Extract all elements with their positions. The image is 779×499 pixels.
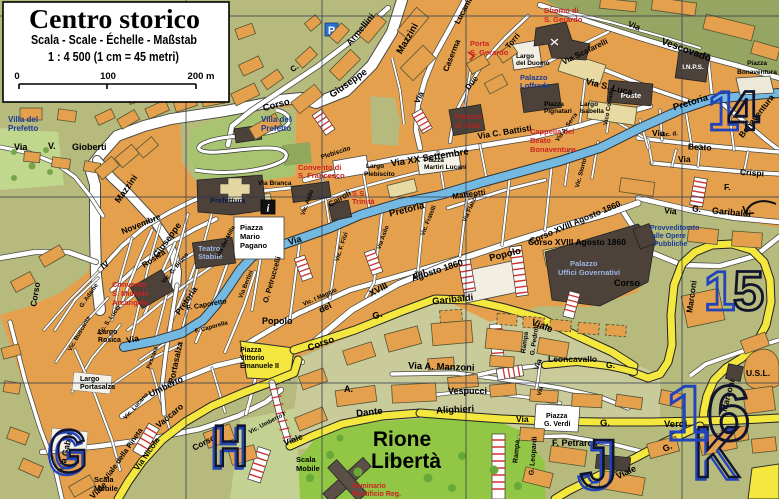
svg-text:V.: V. (48, 141, 56, 151)
svg-text:Piazza: Piazza (424, 157, 444, 164)
svg-text:Libertà: Libertà (371, 450, 441, 473)
svg-text:Leoncavallo: Leoncavallo (548, 354, 597, 364)
svg-text:Piazza: Piazza (747, 60, 767, 67)
svg-text:Popolo: Popolo (262, 316, 293, 326)
svg-text:S. Michele: S. Michele (112, 289, 149, 298)
svg-text:Pubbliche: Pubbliche (654, 241, 688, 248)
svg-text:Via: Via (14, 142, 28, 152)
svg-text:200 m: 200 m (188, 71, 215, 82)
svg-text:Via: Via (678, 154, 691, 164)
svg-text:Plebiscito: Plebiscito (364, 171, 395, 178)
svg-text:Largo: Largo (580, 101, 598, 108)
svg-text:di Città: di Città (455, 121, 481, 130)
svg-text:Rione: Rione (373, 428, 431, 451)
svg-text:Villa del: Villa del (8, 115, 38, 124)
svg-text:Porta: Porta (470, 39, 490, 48)
svg-text:1 : 4 500 (1 cm = 45 metri): 1 : 4 500 (1 cm = 45 metri) (48, 49, 179, 64)
svg-text:Mobile: Mobile (94, 484, 118, 493)
svg-text:Convento: Convento (112, 280, 147, 289)
svg-text:Rosica: Rosica (98, 337, 121, 344)
svg-text:Martiri Lucani: Martiri Lucani (424, 164, 467, 171)
svg-text:1: 1 (666, 369, 709, 457)
svg-text:Emanuele II: Emanuele II (240, 363, 279, 370)
svg-text:Beato: Beato (688, 141, 712, 152)
svg-text:Vespucci: Vespucci (448, 386, 487, 396)
svg-text:Largo: Largo (366, 163, 384, 170)
svg-text:S. Francesco: S. Francesco (298, 171, 345, 180)
svg-text:Piazza: Piazza (240, 223, 264, 232)
svg-text:Centro storico: Centro storico (29, 4, 200, 34)
svg-text:Beato: Beato (530, 136, 551, 145)
svg-text:Via A. Manzoni: Via A. Manzoni (408, 361, 475, 374)
svg-text:Piazza: Piazza (240, 347, 262, 354)
svg-text:Mobile: Mobile (296, 464, 320, 473)
svg-text:Via: Via (516, 414, 529, 424)
svg-text:Mario: Mario (240, 232, 260, 241)
svg-text:Scala: Scala (94, 475, 114, 484)
svg-text:A.: A. (344, 384, 353, 394)
svg-text:Scala: Scala (296, 455, 316, 464)
svg-text:Via Branca: Via Branca (258, 180, 292, 187)
svg-text:S. Gerardo: S. Gerardo (470, 48, 509, 57)
svg-text:Duomo di: Duomo di (544, 6, 579, 15)
svg-text:Loffredo: Loffredo (520, 81, 551, 90)
svg-text:Crispi: Crispi (740, 167, 765, 179)
svg-text:Villa del: Villa del (261, 115, 291, 124)
svg-text:Portasalza: Portasalza (80, 384, 115, 391)
svg-text:G.: G. (606, 360, 615, 370)
svg-text:1: 1 (704, 259, 735, 322)
svg-text:5: 5 (733, 259, 764, 322)
svg-text:Via: Via (664, 205, 678, 216)
svg-text:alle Opere: alle Opere (652, 233, 686, 240)
svg-text:Piazza: Piazza (544, 101, 564, 108)
svg-text:Pontificio Reg.: Pontificio Reg. (352, 491, 401, 498)
svg-text:Seminario: Seminario (352, 483, 386, 490)
svg-text:Prefettura: Prefettura (210, 196, 246, 205)
svg-text:J: J (580, 426, 618, 499)
svg-text:I.N.P.S.: I.N.P.S. (682, 64, 704, 71)
svg-text:Palazzo: Palazzo (455, 112, 483, 121)
svg-text:Prefetto: Prefetto (261, 124, 291, 133)
svg-text:G. Verdi: G. Verdi (544, 421, 571, 428)
svg-text:100: 100 (100, 71, 116, 82)
svg-text:Pagano: Pagano (240, 241, 268, 250)
svg-text:4: 4 (728, 79, 759, 142)
svg-text:Provveditorato: Provveditorato (650, 225, 699, 232)
svg-text:G: G (49, 417, 87, 485)
svg-text:Uffici Governativi: Uffici Governativi (558, 268, 620, 277)
svg-text:H: H (213, 414, 249, 479)
svg-text:Gioberti: Gioberti (72, 142, 107, 152)
svg-text:Prefetto: Prefetto (8, 124, 38, 133)
svg-text:S. Gerardo: S. Gerardo (544, 15, 583, 24)
svg-text:Palazzo: Palazzo (570, 259, 598, 268)
svg-text:0: 0 (14, 71, 19, 82)
svg-text:Scala - Scale - Échelle - Maßs: Scala - Scale - Échelle - Maßstab (31, 32, 197, 47)
svg-text:Largo: Largo (516, 53, 534, 60)
svg-text:Isabella: Isabella (580, 108, 604, 115)
svg-text:Trinità: Trinità (352, 197, 375, 206)
svg-text:Corso: Corso (614, 278, 641, 288)
svg-text:Bonaventura: Bonaventura (530, 145, 577, 154)
svg-text:F.: F. (724, 182, 731, 192)
svg-text:Largo: Largo (80, 376, 99, 383)
svg-text:Vittorio: Vittorio (240, 355, 264, 362)
svg-text:Alighieri: Alighieri (436, 404, 475, 417)
svg-text:6: 6 (707, 369, 750, 457)
svg-text:Piazza: Piazza (546, 413, 568, 420)
svg-text:Pignatari: Pignatari (544, 108, 572, 115)
svg-text:G.: G. (692, 203, 702, 214)
svg-text:del Duomo: del Duomo (516, 60, 550, 67)
svg-text:Bonaventura: Bonaventura (737, 69, 777, 76)
